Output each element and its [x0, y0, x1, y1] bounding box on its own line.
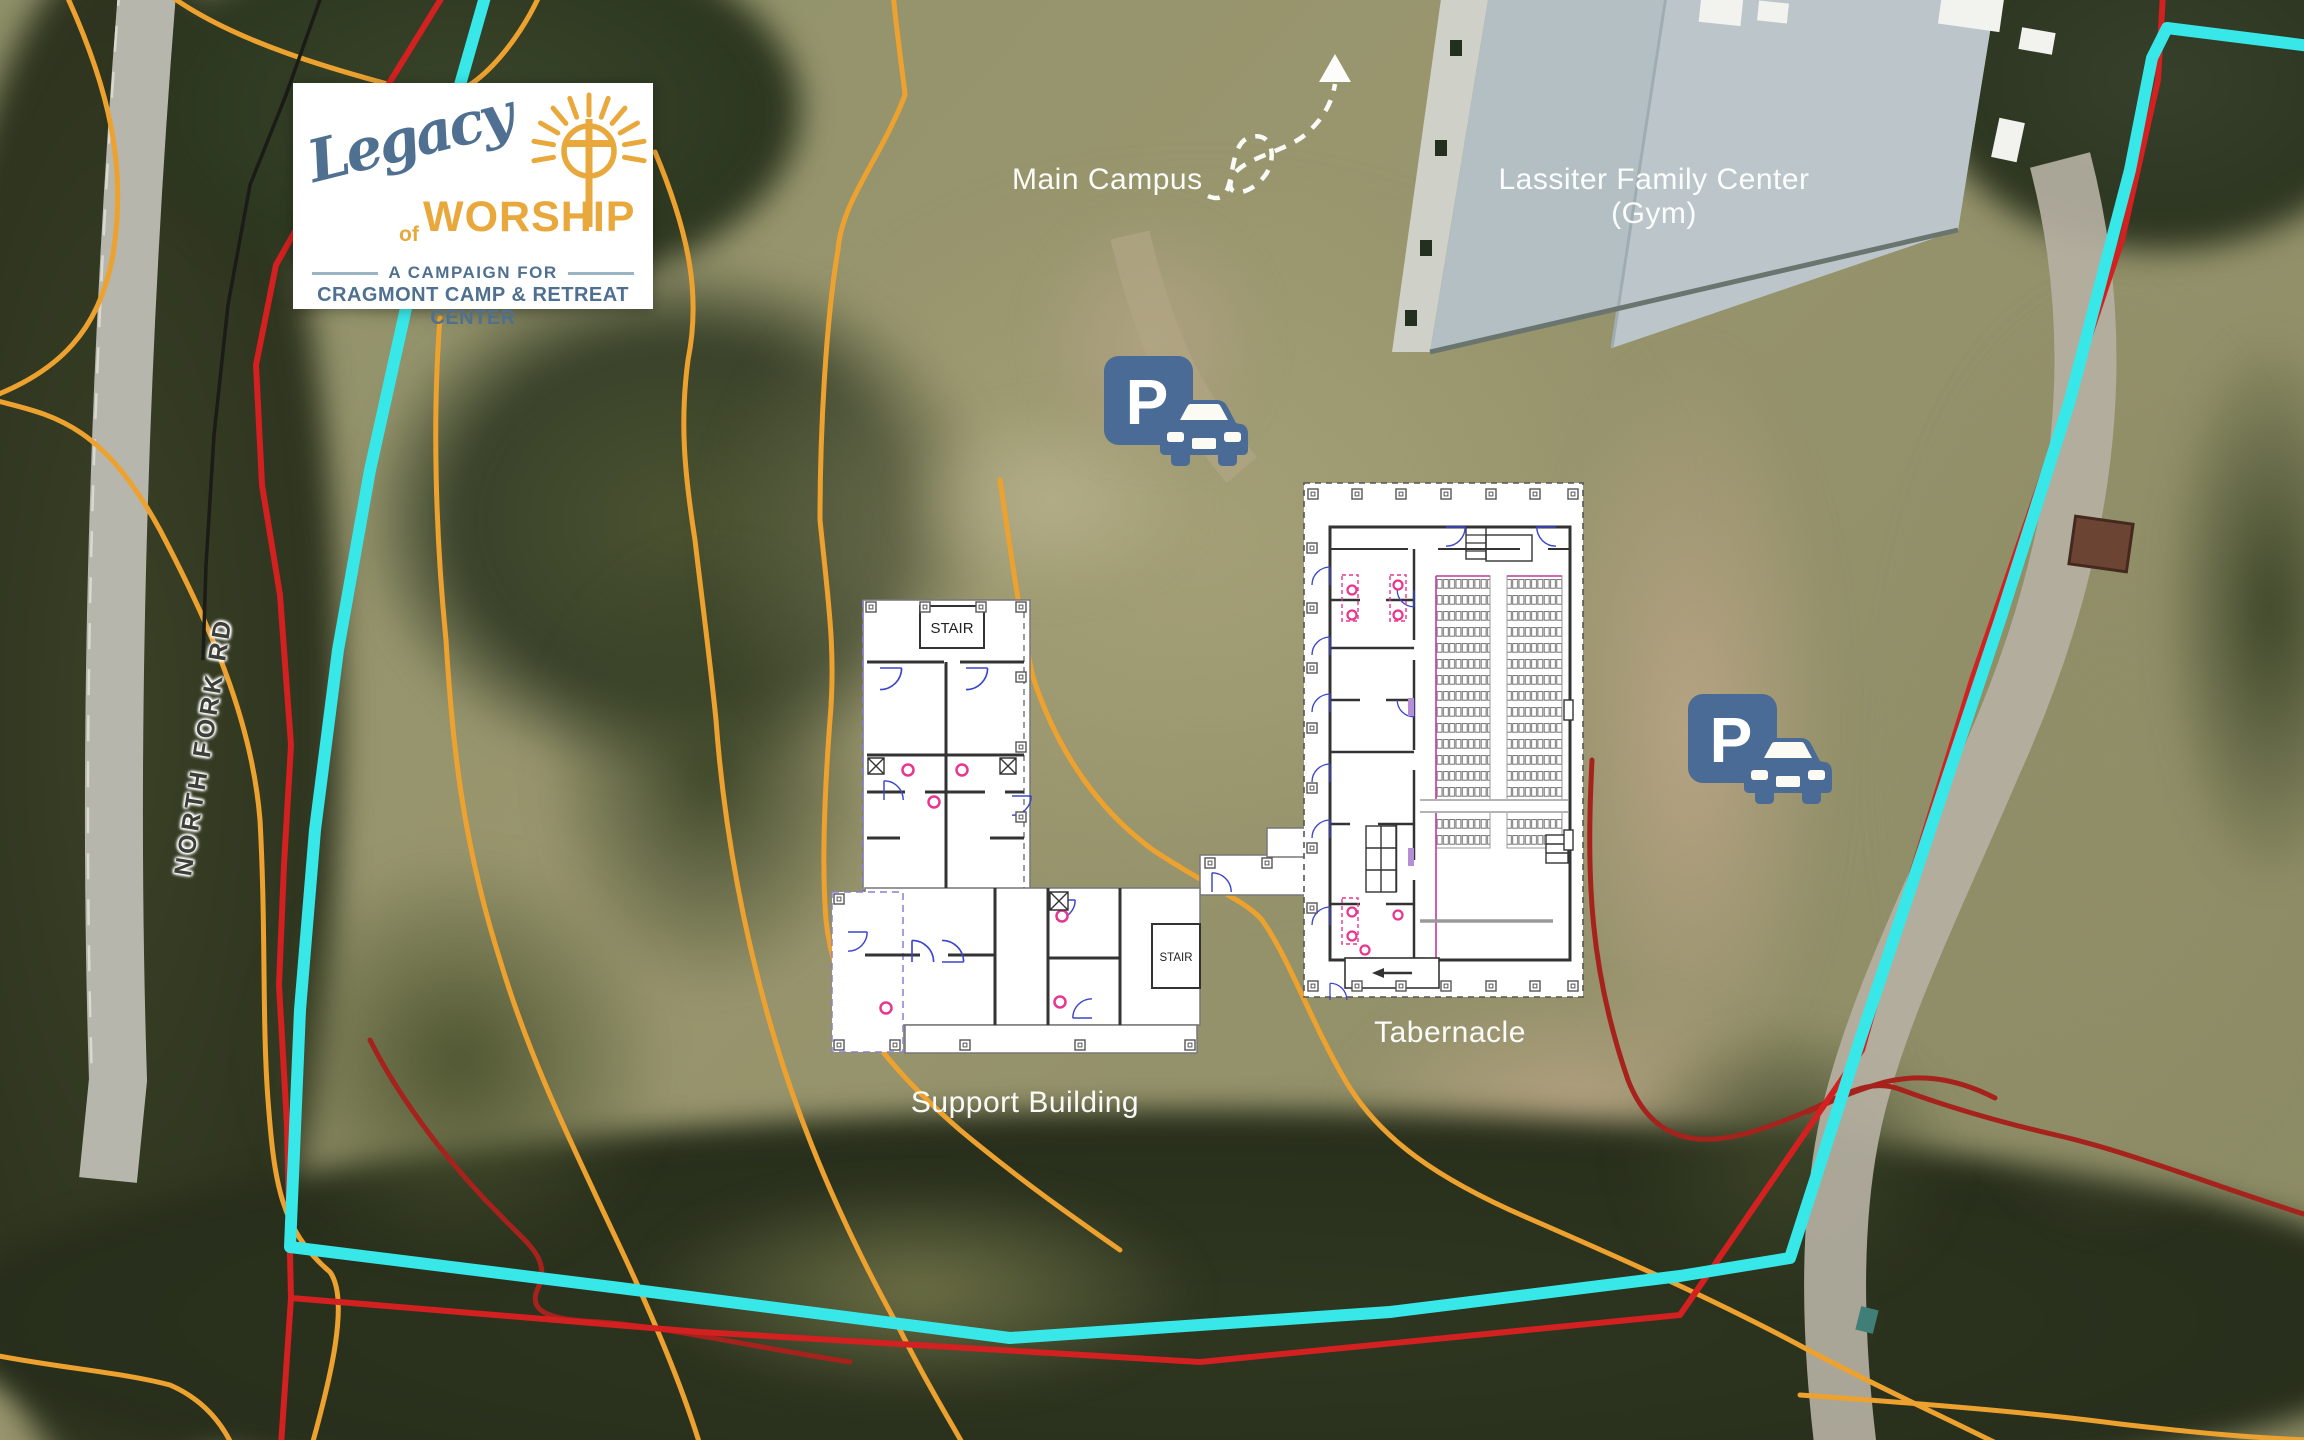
stair-label: STAIR — [930, 620, 973, 637]
stair-label: STAIR — [1159, 952, 1192, 964]
tagline-rule-left — [312, 272, 378, 275]
logo-script-word: Legacy — [301, 80, 518, 196]
site-map: STAIR STAIR — [0, 0, 2304, 1440]
route-arrow-path — [1208, 84, 1335, 198]
road-gravel-right — [1835, 160, 2085, 1440]
support-building-floorplan: STAIR STAIR — [832, 600, 1337, 1053]
pavilion — [2069, 516, 2133, 572]
label-lassiter-line2: (Gym) — [1468, 197, 1840, 231]
logo-tagline-1: A CAMPAIGN FOR — [388, 263, 557, 283]
route-arrow — [1208, 54, 1351, 198]
stair-box: STAIR — [1152, 924, 1200, 988]
label-tabernacle: Tabernacle — [1330, 1016, 1570, 1050]
logo-tagline-row: A CAMPAIGN FOR — [293, 263, 653, 283]
road-north-fork — [108, 0, 148, 1180]
label-lassiter: Lassiter Family Center (Gym) — [1468, 163, 1840, 231]
route-arrowhead — [1319, 54, 1351, 82]
logo-of-word: of — [399, 223, 419, 247]
label-support-building: Support Building — [880, 1086, 1170, 1120]
sunburst-cross-icon — [529, 89, 649, 229]
parking-icon-1: P — [1102, 354, 1252, 468]
logo-tagline-2: CRAGMONT CAMP & RETREAT CENTER — [293, 284, 653, 330]
label-main-campus: Main Campus — [1012, 163, 1203, 197]
tabernacle-floorplan — [1304, 483, 1583, 1000]
tagline-rule-right — [568, 272, 634, 275]
label-lassiter-line1: Lassiter Family Center — [1468, 163, 1840, 197]
campaign-logo-card: Legacy of WORSHIP A CAMPAIGN F — [293, 83, 653, 309]
parking-icon-2: P — [1686, 692, 1836, 806]
